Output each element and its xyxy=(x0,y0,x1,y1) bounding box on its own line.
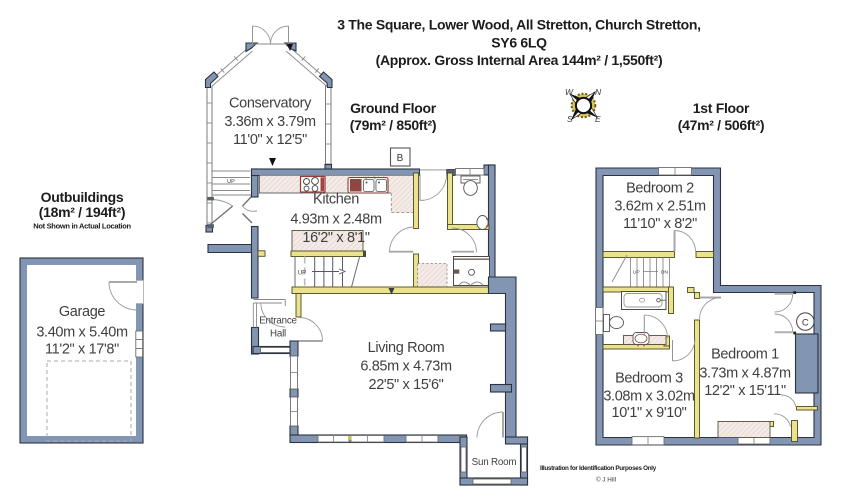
svg-text:3.36m x 3.79m: 3.36m x 3.79m xyxy=(224,114,316,130)
svg-text:3.73m x 4.87m: 3.73m x 4.87m xyxy=(699,366,791,382)
svg-text:Bedroom 2: Bedroom 2 xyxy=(626,181,694,197)
svg-text:Garage: Garage xyxy=(59,304,106,320)
svg-text:3.40m x 5.40m: 3.40m x 5.40m xyxy=(36,325,128,341)
svg-text:(Approx. Gross Internal Area 1: (Approx. Gross Internal Area 144m² / 1,5… xyxy=(376,52,663,68)
svg-text:SY6 6LQ: SY6 6LQ xyxy=(491,35,547,51)
svg-text:(18m² / 194ft²): (18m² / 194ft²) xyxy=(39,204,126,220)
svg-text:B: B xyxy=(397,153,404,164)
svg-text:Outbuildings: Outbuildings xyxy=(41,189,124,205)
svg-text:16'2" x 8'1": 16'2" x 8'1" xyxy=(302,230,369,246)
svg-text:Entrance: Entrance xyxy=(259,316,297,327)
svg-text:Not Shown in Actual Location: Not Shown in Actual Location xyxy=(33,222,131,231)
svg-text:12'2" x 15'11": 12'2" x 15'11" xyxy=(704,383,786,399)
svg-text:UP: UP xyxy=(633,270,640,276)
svg-text:22'5" x 15'6": 22'5" x 15'6" xyxy=(369,377,444,393)
svg-text:Bedroom 3: Bedroom 3 xyxy=(615,371,683,387)
svg-text:Conservatory: Conservatory xyxy=(229,96,312,112)
svg-text:© J Hill: © J Hill xyxy=(596,476,616,484)
svg-text:11'2" x 17'8": 11'2" x 17'8" xyxy=(45,342,119,358)
svg-text:Hall: Hall xyxy=(270,329,286,340)
svg-text:C: C xyxy=(802,317,809,328)
svg-text:11'0" x 12'5": 11'0" x 12'5" xyxy=(233,132,307,148)
svg-text:Bedroom 1: Bedroom 1 xyxy=(711,347,779,363)
svg-text:3.08m x 3.02m: 3.08m x 3.02m xyxy=(603,389,695,405)
svg-text:6.85m x 4.73m: 6.85m x 4.73m xyxy=(360,359,452,375)
svg-text:10'1" x 9'10": 10'1" x 9'10" xyxy=(612,405,687,421)
svg-text:Living Room: Living Room xyxy=(368,340,445,356)
svg-text:(47m² / 506ft²): (47m² / 506ft²) xyxy=(678,117,765,133)
svg-text:S: S xyxy=(567,114,573,124)
svg-text:4.93m x 2.48m: 4.93m x 2.48m xyxy=(290,212,382,228)
svg-text:Illustration for Identificatio: Illustration for Identification Purposes… xyxy=(540,465,657,472)
svg-text:(79m² / 850ft²): (79m² / 850ft²) xyxy=(350,117,437,133)
svg-text:UP: UP xyxy=(227,179,235,185)
svg-text:UP: UP xyxy=(298,271,306,277)
svg-text:Ground Floor: Ground Floor xyxy=(350,100,437,116)
svg-text:W: W xyxy=(565,87,574,97)
svg-text:Kitchen: Kitchen xyxy=(313,192,359,208)
svg-text:3 The Square, Lower Wood, All: 3 The Square, Lower Wood, All Stretton, … xyxy=(337,17,701,33)
svg-text:DN: DN xyxy=(661,270,668,276)
svg-text:11'10" x 8'2": 11'10" x 8'2" xyxy=(623,216,697,232)
svg-text:3.62m x 2.51m: 3.62m x 2.51m xyxy=(614,199,706,215)
svg-text:Sun Room: Sun Room xyxy=(472,457,517,468)
svg-text:E: E xyxy=(595,114,601,124)
svg-text:N: N xyxy=(595,87,602,97)
svg-text:1st Floor: 1st Floor xyxy=(693,100,750,116)
